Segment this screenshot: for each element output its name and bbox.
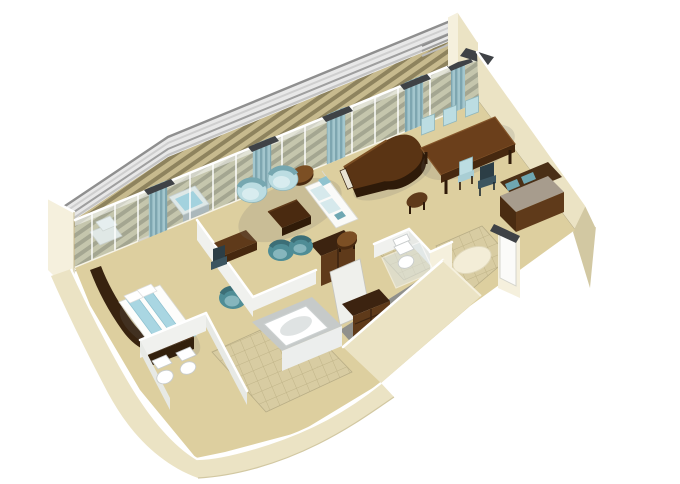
- floorplan-svg: [0, 0, 680, 484]
- armchair-2: [268, 168, 298, 191]
- armchair-1: [237, 180, 267, 203]
- corner-wall: [448, 11, 494, 67]
- floorplan-rendering: [0, 0, 680, 484]
- tub-chair-2: [289, 237, 313, 256]
